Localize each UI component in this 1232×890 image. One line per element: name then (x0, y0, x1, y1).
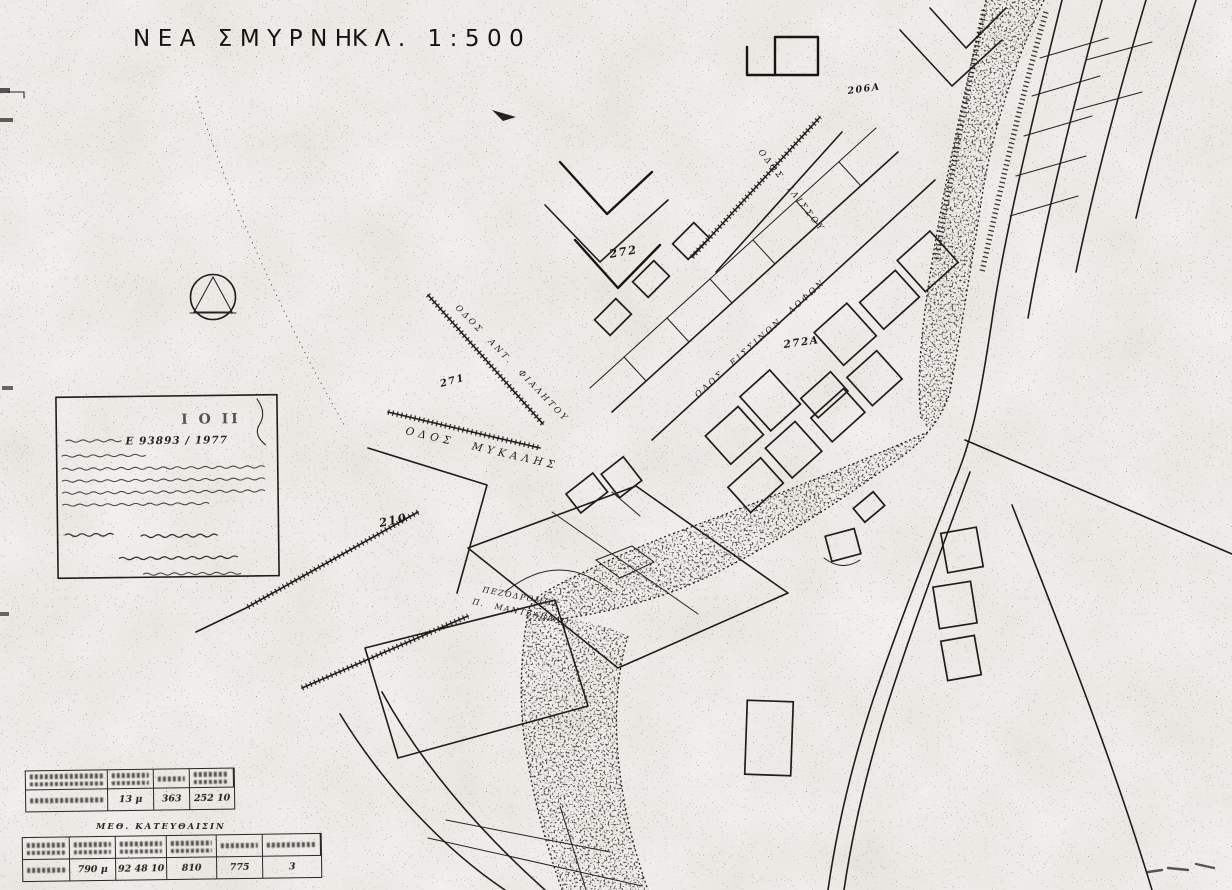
table-header-cell (108, 770, 154, 790)
table-header-cell (217, 835, 263, 858)
table-cell: 790 μ (70, 859, 116, 881)
measurement-table: 13 μ 363 252 10 (25, 768, 236, 813)
direction-table: 790 μ 92 48 10 810 775 3 (22, 833, 323, 882)
table-cell: 363 (154, 788, 190, 810)
illegible-handwriting (30, 781, 103, 786)
illegible-handwriting (171, 848, 212, 853)
illegible-handwriting (74, 849, 111, 854)
illegible-handwriting (27, 842, 65, 848)
scan-noise (0, 0, 1232, 890)
table-value: 92 48 10 (116, 864, 166, 874)
table-value: 790 μ (70, 865, 115, 875)
table-header-cell (116, 836, 167, 859)
table-value: 3 (263, 862, 321, 872)
illegible-handwriting (158, 776, 185, 781)
table-header-cell (26, 770, 108, 790)
table-header-cell (23, 837, 70, 860)
illegible-handwriting (112, 773, 149, 779)
table-cell (26, 789, 108, 811)
table-value: 363 (154, 794, 189, 804)
table-cell: 775 (217, 857, 263, 879)
table-cell (23, 859, 70, 881)
table-value: 13 μ (108, 794, 153, 804)
table-header-cell (190, 769, 234, 789)
illegible-handwriting (30, 797, 103, 803)
table-header-cell (154, 769, 190, 789)
table-cell: 13 μ (108, 789, 154, 811)
table-header-cell (263, 834, 321, 857)
illegible-handwriting (194, 772, 229, 777)
illegible-handwriting (194, 780, 229, 784)
direction-table-title: ΜΕΘ. ΚΑΤΕΥΘΑΙΣΙΝ (96, 822, 226, 832)
illegible-handwriting (221, 843, 258, 849)
illegible-handwriting (171, 840, 212, 846)
illegible-handwriting (30, 773, 103, 779)
table-cell: 252 10 (190, 788, 234, 810)
illegible-handwriting (27, 867, 65, 873)
table-cell: 92 48 10 (116, 858, 167, 880)
map-canvas: Ι Ο ΙΙ Ε 93893 / 1977 ΝΕΑ ΣΜΥΡΝΗ ΚΛ. 1:5… (0, 0, 1232, 890)
table-value: 810 (167, 863, 216, 873)
illegible-handwriting (112, 781, 149, 786)
table-cell: 810 (167, 857, 217, 879)
table-header-cell (167, 835, 217, 858)
illegible-handwriting (74, 841, 111, 847)
table-value: 252 10 (190, 793, 234, 803)
illegible-handwriting (120, 849, 162, 854)
illegible-handwriting (267, 842, 316, 848)
table-cell: 3 (263, 856, 321, 878)
illegible-handwriting (120, 841, 162, 847)
scanned-map-page: Ι Ο ΙΙ Ε 93893 / 1977 ΝΕΑ ΣΜΥΡΝΗ ΚΛ. 1:5… (0, 0, 1232, 890)
illegible-handwriting (27, 850, 65, 855)
table-value: 775 (217, 862, 262, 872)
table-header-cell (70, 837, 116, 860)
